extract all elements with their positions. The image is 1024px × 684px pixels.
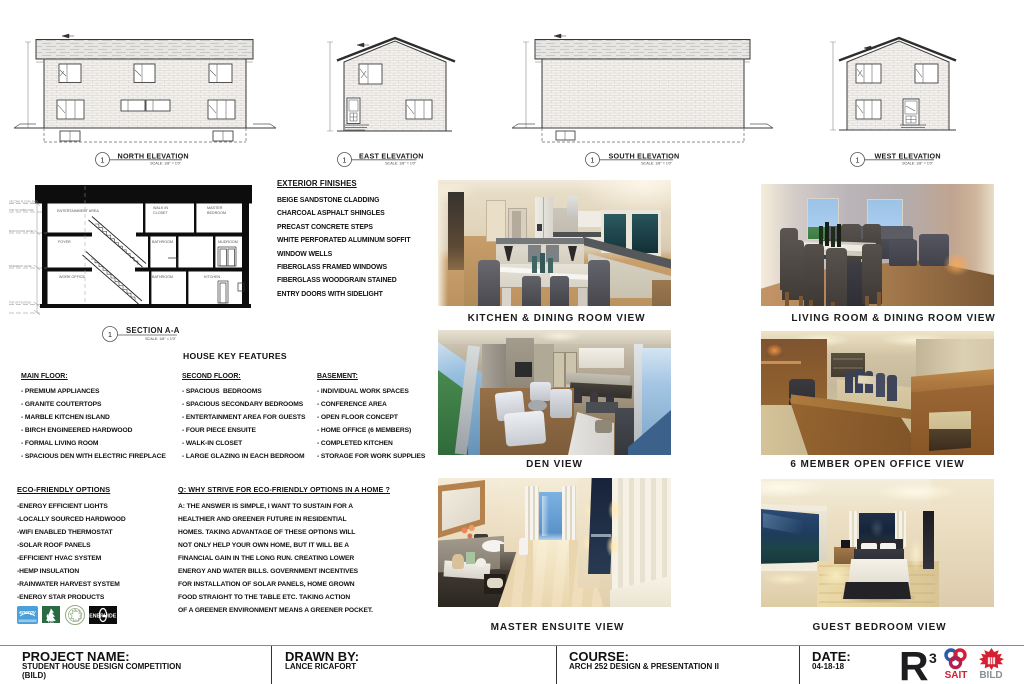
svg-text:FSC: FSC: [48, 620, 55, 624]
svg-text:TOP OF FOOTING: TOP OF FOOTING: [9, 301, 31, 305]
svg-text:MUDROOM: MUDROOM: [218, 240, 238, 244]
svg-text:SCALE: 1/8" = 1'0": SCALE: 1/8" = 1'0": [641, 162, 673, 166]
svg-text:1: 1: [342, 155, 346, 164]
svg-text:WORK OFFICE: WORK OFFICE: [59, 275, 86, 279]
svg-text:SCALE: 1/8" = 1'0": SCALE: 1/8" = 1'0": [385, 162, 417, 166]
svg-text:BATHROOM: BATHROOM: [152, 240, 173, 244]
svg-text:MASTER: MASTER: [207, 206, 223, 210]
svg-text:SOUTH ELEVATION: SOUTH ELEVATION: [609, 151, 680, 160]
svg-text:SECOND FLOOR LEVEL: SECOND FLOOR LEVEL: [9, 200, 39, 204]
svg-text:KITCHEN: KITCHEN: [204, 275, 221, 279]
svg-text:SCALE: 1/8" = 1'0": SCALE: 1/8" = 1'0": [902, 162, 934, 166]
svg-text:1: 1: [855, 155, 859, 164]
svg-text:BASEMENT LEVEL: BASEMENT LEVEL: [9, 264, 33, 268]
svg-text:BEDROOM: BEDROOM: [207, 211, 226, 215]
svg-text:SECTION A-A: SECTION A-A: [126, 326, 180, 335]
svg-text:FOYER: FOYER: [58, 240, 71, 244]
svg-text:WEST ELEVATION: WEST ELEVATION: [875, 151, 941, 160]
svg-text:CLOSET: CLOSET: [153, 211, 169, 215]
svg-text:NORTH ELEVATION: NORTH ELEVATION: [118, 151, 189, 160]
svg-text:SCALE: 1/8" = 1'0": SCALE: 1/8" = 1'0": [150, 162, 182, 166]
svg-text:WALK IN: WALK IN: [153, 206, 168, 210]
svg-text:EAST ELEVATION: EAST ELEVATION: [359, 151, 424, 160]
svg-text:SCALE: 1/8" = 1'0": SCALE: 1/8" = 1'0": [145, 337, 177, 341]
svg-text:1: 1: [108, 330, 112, 339]
svg-text:ENER: ENER: [89, 614, 104, 620]
svg-text:1: 1: [100, 155, 104, 164]
svg-text:ENTERTAINMENT AREA: ENTERTAINMENT AREA: [57, 209, 99, 213]
svg-text:TOP OF SUBFLOOR: TOP OF SUBFLOOR: [9, 208, 34, 212]
svg-text:MAIN FLOOR LEVEL: MAIN FLOOR LEVEL: [9, 229, 34, 233]
svg-text:1: 1: [590, 155, 594, 164]
svg-text:BATHROOM: BATHROOM: [152, 275, 173, 279]
